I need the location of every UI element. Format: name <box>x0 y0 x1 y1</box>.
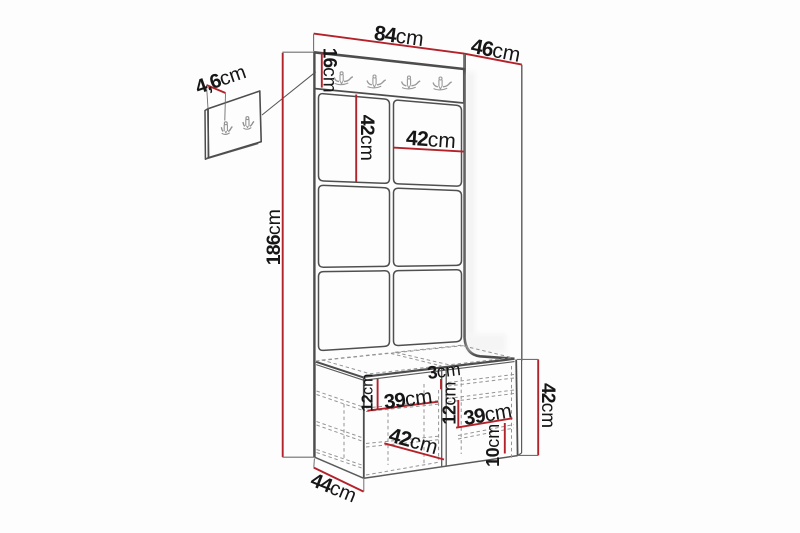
svg-text:42cm: 42cm <box>538 383 559 428</box>
svg-text:10cm: 10cm <box>483 424 503 467</box>
svg-text:16cm: 16cm <box>319 48 340 93</box>
svg-text:12cm: 12cm <box>439 382 459 425</box>
svg-text:42cm: 42cm <box>405 126 456 152</box>
svg-text:12cm: 12cm <box>359 374 376 412</box>
svg-text:42cm: 42cm <box>356 115 378 161</box>
svg-text:186cm: 186cm <box>263 209 285 265</box>
svg-text:3cm: 3cm <box>426 359 461 383</box>
